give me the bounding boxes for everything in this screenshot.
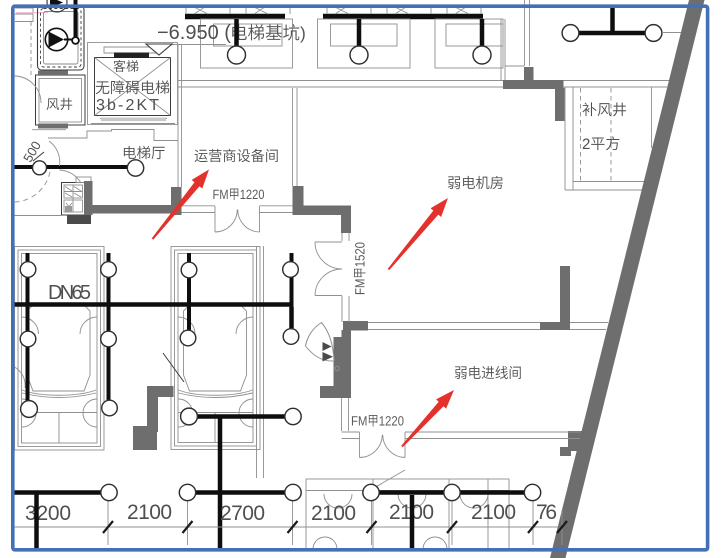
svg-text:3200: 3200 [25, 502, 71, 525]
svg-text:2100: 2100 [311, 502, 356, 525]
svg-text:DN65: DN65 [48, 282, 91, 304]
svg-text:76: 76 [536, 501, 557, 524]
svg-text:2100: 2100 [127, 501, 172, 524]
svg-text:−6.950 (: −6.950 ( [157, 22, 231, 44]
svg-text:2700: 2700 [220, 502, 265, 525]
svg-text:2100: 2100 [471, 501, 516, 524]
